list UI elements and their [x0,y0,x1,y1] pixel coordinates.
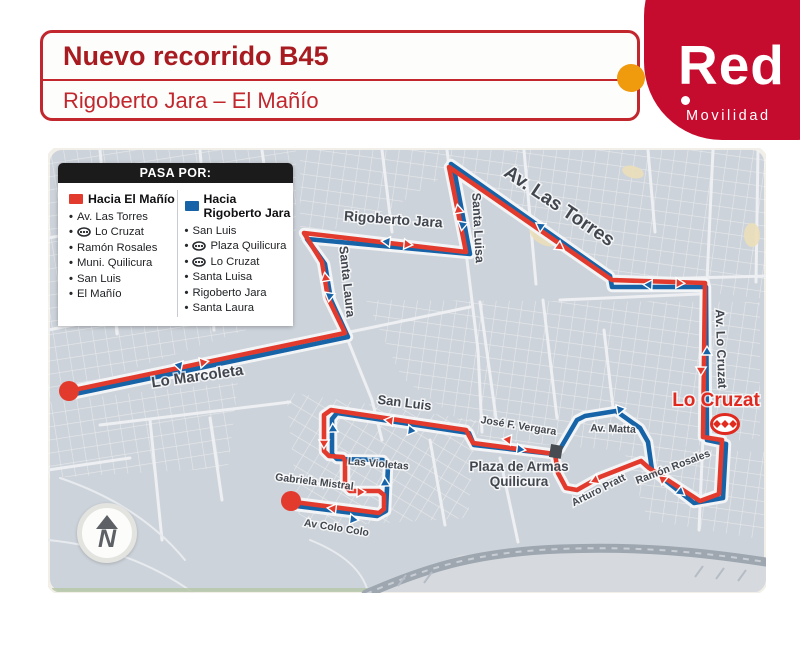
legend-column-title: Hacia El Mañío [88,192,175,206]
street-label: Av. Lo Cruzat [713,309,730,389]
legend-item-label: Lo Cruzat [210,256,259,268]
metro-icon [192,257,206,267]
legend-item: • Muni. Quilicura [69,257,177,269]
legend-item: • Rigoberto Jara [185,287,292,299]
bullet: • [185,302,189,314]
route-terminal-dot [59,381,79,401]
legend-column-header: Hacia Rigoberto Jara [185,192,292,220]
legend-item: • Plaza Quilicura [185,240,292,252]
bullet: • [69,211,73,223]
legend-item-label: El Mañío [77,288,122,300]
bullet: • [185,240,189,252]
legend-item: • Santa Luisa [185,271,292,283]
bullet: • [69,288,73,300]
route-color-swatch [185,201,199,211]
route-color-swatch [69,194,83,204]
legend-item: • El Mañío [69,288,177,300]
bullet: • [185,271,189,283]
bullet: • [69,242,73,254]
street-label: Av. Matta [590,422,636,436]
compass-rose: N [77,503,137,563]
page-title: Nuevo recorrido B45 [43,33,637,81]
legend-item-label: Plaza Quilicura [210,240,286,252]
street-label: Plaza de Armas [469,459,568,474]
title-box: Nuevo recorrido B45 Rigoberto Jara – El … [40,30,640,121]
metro-icon [192,241,206,251]
legend-item-list: • Av. Las Torres • Lo Cruzat • Ramón Ros… [69,211,177,300]
bullet: • [69,226,73,238]
legend-column-title: Hacia Rigoberto Jara [204,192,292,220]
legend-item-label: Muni. Quilicura [77,257,152,269]
logo-brand-text: Red [678,38,785,93]
legend-item: • San Luis [69,273,177,285]
legend-item-label: San Luis [192,225,236,237]
legend-column-blue: Hacia Rigoberto Jara • San Luis • Plaza … [177,190,292,317]
legend-column-red: Hacia El Mañío • Av. Las Torres • Lo Cru… [62,190,177,317]
legend-item-label: San Luis [77,273,121,285]
legend-item-label: Santa Luisa [192,271,252,283]
flyer-page: Nuevo recorrido B45 Rigoberto Jara – El … [0,0,800,657]
legend-header: PASA POR: [58,163,293,183]
legend-body: Hacia El Mañío • Av. Las Torres • Lo Cru… [58,183,293,326]
legend-item-list: • San Luis • Plaza Quilicura • Lo Cruzat… [185,225,292,314]
legend-item: • Ramón Rosales [69,242,177,254]
legend-item-label: Lo Cruzat [95,226,144,238]
bullet: • [69,273,73,285]
bullet: • [185,225,189,237]
street-label: Lo Cruzat [672,390,760,411]
logo-dot [681,96,690,105]
logo-tagline: Movilidad [686,108,771,124]
bullet: • [185,256,189,268]
page-subtitle: Rigoberto Jara – El Mañío [43,81,637,114]
compass-letter: N [82,527,132,552]
legend-item: • Lo Cruzat [185,256,292,268]
legend-column-header: Hacia El Mañío [69,192,177,206]
legend-item-label: Ramón Rosales [77,242,157,254]
bullet: • [185,287,189,299]
street-label: Quilicura [490,474,549,489]
legend-box: PASA POR: Hacia El Mañío • Av. Las Torre… [58,163,293,326]
municipal-building-marker [549,444,563,459]
metro-icon [77,227,91,237]
orange-dot-decoration [617,64,645,92]
legend-item: • Lo Cruzat [69,226,177,238]
legend-item: • Santa Laura [185,302,292,314]
route-terminal-dot [281,491,301,511]
legend-item-label: Av. Las Torres [77,211,148,223]
legend-item: • San Luis [185,225,292,237]
metro-station-icon [712,415,739,434]
legend-item-label: Rigoberto Jara [192,287,266,299]
bullet: • [69,257,73,269]
red-movilidad-logo: Red Movilidad [644,0,800,140]
legend-item-label: Santa Laura [192,302,254,314]
legend-item: • Av. Las Torres [69,211,177,223]
